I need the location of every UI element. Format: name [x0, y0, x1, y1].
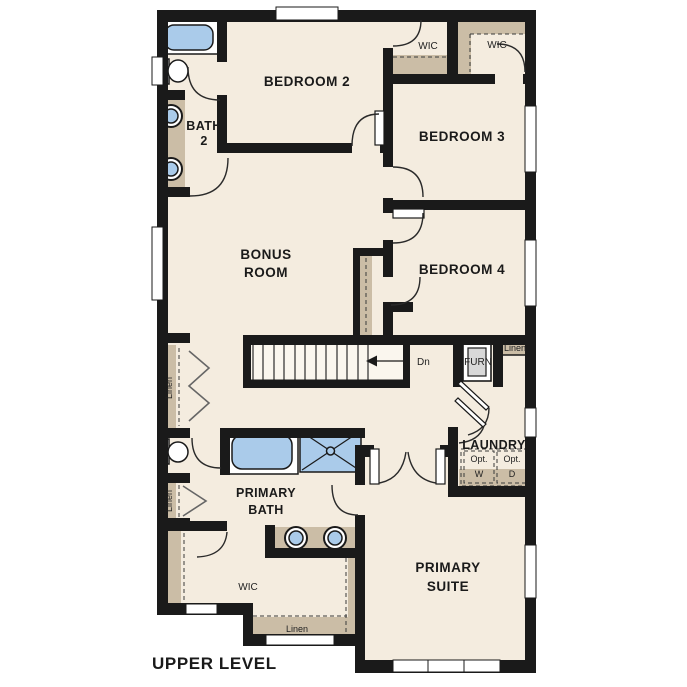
linen-laundry-label: Linen	[504, 343, 526, 353]
primary-sink-basin	[289, 531, 303, 545]
bonus-room-label-line2: ROOM	[244, 265, 288, 280]
bath2-toilet-icon	[168, 60, 188, 82]
linen-nook-label: Linen	[286, 624, 308, 634]
primary-sink2-basin	[328, 531, 342, 545]
bonus-room-label-line1: BONUS	[240, 247, 291, 262]
window-wic-bottom	[186, 604, 217, 614]
primary-bathtub-icon	[232, 435, 292, 469]
opt-dryer-label-line2: D	[509, 469, 516, 479]
bathtub-icon	[165, 25, 213, 50]
primary-toilet-icon	[168, 442, 188, 462]
window-nook-bottom	[266, 635, 334, 645]
opt-dryer-label-line1: Opt.	[503, 454, 520, 464]
wic-bedroom3-label: WIC	[487, 40, 506, 51]
linen-hall-label: Linen	[164, 377, 174, 399]
window-suite-right	[525, 545, 536, 598]
page-title: UPPER LEVEL	[152, 654, 277, 673]
wic-bedroom3-shelf-left	[458, 22, 471, 77]
upper-level-floorplan: BEDROOM 2 BEDROOM 3 BEDROOM 4 BONUS ROOM…	[0, 0, 687, 687]
window-bath2-left	[152, 57, 163, 85]
window-bedroom4-right	[525, 240, 536, 306]
window-suite-bottom	[393, 660, 500, 672]
window-laundry-right	[525, 408, 536, 437]
wic-primary-label: WIC	[238, 582, 257, 593]
floorplan-page: BEDROOM 2 BEDROOM 3 BEDROOM 4 BONUS ROOM…	[0, 0, 687, 687]
shower-drain	[327, 447, 335, 455]
bedroom3-label: BEDROOM 3	[419, 129, 505, 144]
primary-suite-label-line1: PRIMARY	[415, 560, 480, 575]
bedroom4-door-panel	[393, 209, 424, 218]
wic-primary-shelf-right	[348, 556, 355, 635]
bedroom2-label: BEDROOM 2	[264, 74, 350, 89]
linen-bath-label: Linen	[164, 490, 174, 512]
bedroom4-label: BEDROOM 4	[419, 262, 505, 277]
opt-washer-label-line2: W	[475, 469, 484, 479]
opt-washer-label-line1: Opt.	[470, 454, 487, 464]
wic-bedroom2-label: WIC	[418, 41, 437, 52]
bath2-label-line2: 2	[200, 134, 207, 148]
stairs	[250, 343, 406, 380]
wic-primary-shelf-left	[168, 531, 181, 603]
primary-bath-label-line2: BATH	[248, 503, 283, 517]
wic-bedroom2-shelf	[393, 55, 447, 74]
window-bonus-left	[152, 227, 163, 300]
furnace-label: FURN	[464, 357, 492, 368]
suite-double-door-right-panel	[436, 449, 445, 484]
laundry-label: LAUNDRY	[462, 438, 526, 452]
primary-bath-label-line1: PRIMARY	[236, 486, 296, 500]
stairs-dn-label: Dn	[417, 357, 430, 368]
window-bedroom3-right	[525, 106, 536, 172]
bath2-label-line1: BATH	[186, 119, 221, 133]
primary-suite-label-line2: SUITE	[427, 579, 469, 594]
bedroom2-door-panel	[375, 111, 384, 145]
window-bedroom2-top	[276, 7, 338, 20]
suite-double-door-left-panel	[370, 449, 379, 484]
